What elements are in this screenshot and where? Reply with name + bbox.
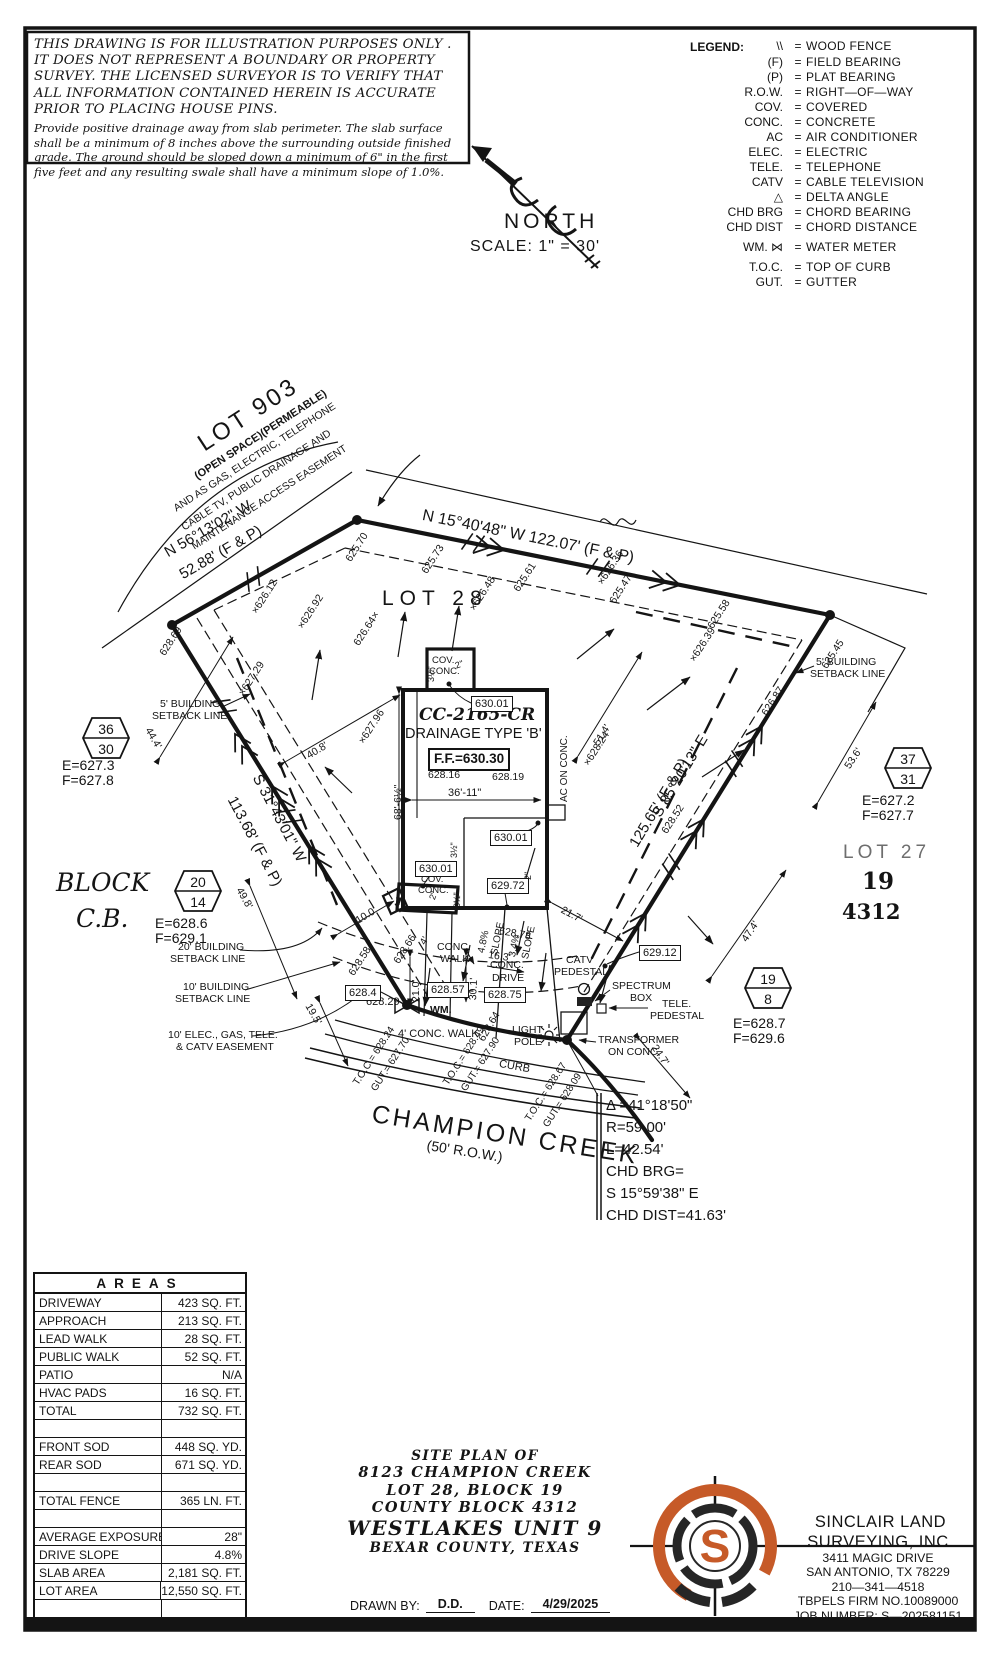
areas-row-value: 52 SQ. FT. — [162, 1348, 245, 1365]
legend-symbol: ELEC. — [690, 146, 790, 158]
legend-label: CABLE TELEVISION — [806, 176, 990, 188]
lot-marker-hexagon: 19 8 — [744, 966, 792, 1010]
plan-label: CATV — [566, 955, 593, 966]
areas-row-label — [35, 1600, 162, 1617]
plan-label: R=59.00' — [606, 1120, 666, 1135]
legend-symbol: CHD DIST — [690, 221, 790, 233]
hex-bottom-number: 14 — [190, 894, 206, 910]
surveyor-name-line2: SURVEYING, INC. — [798, 1533, 963, 1553]
hex-top-number: 37 — [900, 751, 916, 767]
areas-row-label — [35, 1474, 162, 1491]
areas-row-label: SLAB AREA — [35, 1564, 162, 1581]
areas-row-value: 12,550 SQ. FT. — [161, 1582, 245, 1599]
legend-equals: = — [790, 276, 806, 288]
title-block-line: 8123 CHAMPION CREEK — [325, 1464, 625, 1481]
areas-table-row: PUBLIC WALK 52 SQ. FT. — [35, 1348, 245, 1366]
north-label: NORTH — [504, 210, 598, 234]
legend-label: WOOD FENCE — [806, 40, 990, 52]
title-block-line: WESTLAKES UNIT 9 — [325, 1516, 625, 1540]
drawn-by-label: DRAWN BY: — [350, 1599, 420, 1613]
tele-pedestal-icon — [597, 1004, 606, 1013]
areas-row-value — [162, 1600, 245, 1617]
plan-label: 19 — [862, 870, 894, 893]
plan-label: TELE. — [662, 999, 691, 1010]
elevation-box: 630.01 — [471, 696, 513, 712]
plan-label: SETBACK LINE — [175, 994, 250, 1005]
areas-table-title: AREAS — [35, 1274, 245, 1294]
hex-bottom-number: 30 — [98, 741, 114, 757]
legend-symbol: TELE. — [690, 161, 790, 173]
title-block: SITE PLAN OF 8123 CHAMPION CREEK LOT 28,… — [325, 1448, 625, 1557]
plan-label: PEDESTAL — [650, 1011, 704, 1022]
elevation-box: 630.01 — [490, 830, 532, 846]
legend-equals: = — [790, 86, 806, 98]
legend-row: COV. = COVERED — [690, 101, 990, 113]
plan-label: BOX — [630, 993, 652, 1004]
plan-label: PEDESTAL — [554, 967, 608, 978]
legend-symbol: (F) — [690, 56, 790, 68]
legend-row: (P) = PLAT BEARING — [690, 71, 990, 83]
legend-equals: = — [790, 241, 806, 253]
areas-row-label: APPROACH — [35, 1312, 162, 1329]
areas-row-label: REAR SOD — [35, 1456, 162, 1473]
legend-row: T.O.C. = TOP OF CURB — [690, 261, 990, 273]
legend-label: PLAT BEARING — [806, 71, 990, 83]
surveyor-phone: 210—341—4518 — [778, 1580, 978, 1594]
plan-label: CHD BRG= — [606, 1164, 684, 1179]
areas-row-label — [35, 1420, 162, 1437]
areas-table-row — [35, 1474, 245, 1492]
legend-equals: = — [790, 101, 806, 113]
plan-label: 3½" — [450, 842, 459, 858]
legend-row: AC = AIR CONDITIONER — [690, 131, 990, 143]
areas-row-value: 671 SQ. YD. — [162, 1456, 245, 1473]
plan-label: & CATV EASEMENT — [176, 1042, 274, 1053]
plan-label: AC ON CONC. — [560, 735, 570, 802]
disclaimer-body: Provide positive drainage away from slab… — [34, 121, 464, 179]
areas-row-label: AVERAGE EXPOSURE — [35, 1528, 162, 1545]
legend-equals: = — [790, 40, 806, 52]
plan-label: BLOCK — [56, 870, 149, 895]
legend-label: AIR CONDITIONER — [806, 131, 990, 143]
areas-row-label — [35, 1510, 162, 1527]
plan-label: SETBACK LINE — [170, 954, 245, 965]
areas-table-row: LOT AREA 12,550 SQ. FT. — [35, 1582, 245, 1600]
areas-table-row — [35, 1600, 245, 1618]
legend-symbol: AC — [690, 131, 790, 143]
plan-label: 5' BUILDING — [160, 699, 220, 710]
surveyor-firm: TBPELS FIRM NO.10089000 — [778, 1594, 978, 1608]
areas-row-value: 28" — [162, 1528, 245, 1545]
areas-table-row: LEAD WALK 28 SQ. FT. — [35, 1330, 245, 1348]
surveyor-name: SINCLAIR LAND SURVEYING, INC. — [798, 1513, 963, 1553]
plan-label: F=629.1 — [155, 931, 207, 945]
legend-symbol: CHD BRG — [690, 206, 790, 218]
areas-table-row: TOTAL FENCE 365 LN. FT. — [35, 1492, 245, 1510]
areas-table-row: DRIVEWAY 423 SQ. FT. — [35, 1294, 245, 1312]
legend-symbol: CONC. — [690, 116, 790, 128]
legend-symbol: GUT. — [690, 276, 790, 288]
areas-row-label: HVAC PADS — [35, 1384, 162, 1401]
areas-table-row: PATIO N/A — [35, 1366, 245, 1384]
plan-label: E=627.2 — [862, 793, 915, 807]
legend-equals: = — [790, 261, 806, 273]
plan-label: Δ =41°18'50" — [606, 1098, 692, 1113]
surveyor-job-number: JOB NUMBER: S—202581151 — [778, 1609, 978, 1623]
legend-row: R.O.W. = RIGHT—OF—WAY — [690, 86, 990, 98]
legend-label: CHORD BEARING — [806, 206, 990, 218]
legend-symbol: COV. — [690, 101, 790, 113]
legend-row: TELE. = TELEPHONE — [690, 161, 990, 173]
plan-label: CHD DIST=41.63' — [606, 1208, 726, 1223]
legend-label: TELEPHONE — [806, 161, 990, 173]
plan-label: F=627.8 — [62, 773, 114, 787]
surveyor-street: 3411 MAGIC DRIVE — [778, 1551, 978, 1565]
legend-label: WATER METER — [806, 241, 990, 253]
elevation-box: 628.4 — [345, 985, 381, 1001]
areas-table-row: DRIVE SLOPE 4.8% — [35, 1546, 245, 1564]
plan-label: TRANSFORMER — [598, 1035, 679, 1046]
plan-label: 4312 — [842, 901, 900, 922]
elevation-box: 628.57 — [427, 982, 469, 998]
legend-equals: = — [790, 191, 806, 203]
areas-row-label: PATIO — [35, 1366, 162, 1383]
areas-row-value: 423 SQ. FT. — [162, 1294, 245, 1311]
lot-marker-hexagon: 36 30 — [82, 716, 130, 760]
title-block-line: LOT 28, BLOCK 19 — [325, 1482, 625, 1499]
elevation-box: 629.72 — [487, 878, 529, 894]
spectrum-box-icon — [577, 997, 592, 1006]
areas-row-value: 365 LN. FT. — [162, 1492, 245, 1509]
legend-row: CATV = CABLE TELEVISION — [690, 176, 990, 188]
title-block-line: BEXAR COUNTY, TEXAS — [325, 1540, 625, 1556]
areas-table-row: HVAC PADS 16 SQ. FT. — [35, 1384, 245, 1402]
plan-label: F=629.6 — [733, 1031, 785, 1045]
site-plan-sheet: S THIS DRAWING IS FOR ILLUSTRATION PURPO… — [0, 0, 1005, 1657]
legend-symbol: WM. ⋈ — [690, 241, 790, 253]
scale-label: SCALE: 1" = 30' — [470, 238, 600, 256]
plan-label: 3½" — [453, 892, 462, 908]
hex-top-number: 19 — [760, 971, 776, 987]
date-value: 4/29/2025 — [531, 1597, 611, 1613]
elevation-box: 628.75 — [484, 987, 526, 1003]
areas-row-value — [162, 1420, 245, 1437]
legend-label: CONCRETE — [806, 116, 990, 128]
legend-symbol: △ — [690, 191, 790, 203]
areas-table-row: SLAB AREA 2,181 SQ. FT. — [35, 1564, 245, 1582]
areas-row-value: 732 SQ. FT. — [162, 1402, 245, 1419]
areas-row-value: 448 SQ. YD. — [162, 1438, 245, 1455]
plan-label: S 15°59'38" E — [606, 1186, 699, 1201]
areas-row-value: N/A — [162, 1366, 245, 1383]
legend-symbol: CATV — [690, 176, 790, 188]
areas-table-row: TOTAL 732 SQ. FT. — [35, 1402, 245, 1420]
areas-row-value: 213 SQ. FT. — [162, 1312, 245, 1329]
legend-label: RIGHT—OF—WAY — [806, 86, 990, 98]
areas-row-value: 28 SQ. FT. — [162, 1330, 245, 1347]
plan-label: 21.0' — [411, 980, 422, 1002]
legend-row: ELEC. = ELECTRIC — [690, 146, 990, 158]
drawn-by-value: D.D. — [426, 1597, 475, 1613]
disclaimer-heading: THIS DRAWING IS FOR ILLUSTRATION PURPOSE… — [34, 37, 464, 118]
logo-letter: S — [700, 1520, 731, 1572]
plan-label: LIGHT — [512, 1025, 543, 1036]
areas-row-label: TOTAL FENCE — [35, 1492, 162, 1509]
elevation-box: 630.01 — [415, 861, 457, 877]
plan-label: C.B. — [76, 906, 129, 931]
areas-row-label: DRIVEWAY — [35, 1294, 162, 1311]
legend-row: CHD DIST = CHORD DISTANCE — [690, 221, 990, 233]
areas-table-row: APPROACH 213 SQ. FT. — [35, 1312, 245, 1330]
areas-table-row: FRONT SOD 448 SQ. YD. — [35, 1438, 245, 1456]
lot-marker-hexagon: 20 14 — [174, 869, 222, 913]
surveyor-address: 3411 MAGIC DRIVE SAN ANTONIO, TX 78229 2… — [778, 1551, 978, 1623]
legend-equals: = — [790, 146, 806, 158]
plan-label: 3½" — [427, 666, 436, 682]
legend-equals: = — [790, 71, 806, 83]
plan-label: SETBACK LINE — [152, 711, 227, 722]
areas-row-label: LOT AREA — [35, 1582, 161, 1599]
plan-label: LOT 27 — [843, 843, 930, 862]
plan-label: 4' CONC. WALK — [398, 1029, 479, 1040]
plan-label: CONC. — [437, 942, 471, 953]
date-label: DATE: — [489, 1599, 525, 1613]
areas-table-row: AVERAGE EXPOSURE 28" — [35, 1528, 245, 1546]
legend-symbol: (P) — [690, 71, 790, 83]
areas-table: AREAS DRIVEWAY 423 SQ. FT. APPROACH 213 … — [33, 1272, 247, 1620]
areas-table-row — [35, 1420, 245, 1438]
plan-label: E=627.3 — [62, 758, 115, 772]
plan-label: WM. — [430, 1005, 452, 1016]
legend-equals: = — [790, 206, 806, 218]
plan-label: F=627.7 — [862, 808, 914, 822]
plan-label: DRAINAGE TYPE 'B' — [405, 727, 542, 742]
areas-row-value — [162, 1510, 245, 1527]
legend-label: GUTTER — [806, 276, 990, 288]
legend-row: CHD BRG = CHORD BEARING — [690, 206, 990, 218]
legend-row: (F) = FIELD BEARING — [690, 56, 990, 68]
plan-label: POLE — [514, 1037, 542, 1048]
plan-label: L=42.54' — [606, 1142, 664, 1157]
surveyor-name-line1: SINCLAIR LAND — [798, 1513, 963, 1533]
legend-label: DELTA ANGLE — [806, 191, 990, 203]
lot-marker-hexagon: 37 31 — [884, 746, 932, 790]
legend-label: CHORD DISTANCE — [806, 221, 990, 233]
areas-row-value — [162, 1474, 245, 1491]
plan-label: 628.19 — [492, 772, 524, 783]
legend-equals: = — [790, 161, 806, 173]
areas-row-label: LEAD WALK — [35, 1330, 162, 1347]
disclaimer: THIS DRAWING IS FOR ILLUSTRATION PURPOSE… — [34, 37, 464, 179]
plan-label: SETBACK LINE — [810, 669, 885, 680]
legend-row: GUT. = GUTTER — [690, 276, 990, 288]
title-block-line: SITE PLAN OF — [325, 1448, 625, 1464]
drawn-by-row: DRAWN BY: D.D. DATE: 4/29/2025 — [350, 1597, 624, 1613]
legend-equals: = — [790, 221, 806, 233]
legend-row: \\ = WOOD FENCE — [690, 40, 990, 52]
legend-symbol: R.O.W. — [690, 86, 790, 98]
plan-label: 628.16 — [428, 770, 460, 781]
areas-row-label: FRONT SOD — [35, 1438, 162, 1455]
areas-row-value: 2,181 SQ. FT. — [162, 1564, 245, 1581]
areas-row-value: 4.8% — [162, 1546, 245, 1563]
areas-table-row — [35, 1510, 245, 1528]
plan-label: 10' ELEC., GAS, TELE. — [168, 1030, 278, 1041]
elevation-box: 629.12 — [639, 945, 681, 961]
hex-bottom-number: 8 — [764, 991, 772, 1007]
hex-top-number: 36 — [98, 721, 114, 737]
plan-label: 10' BUILDING — [183, 982, 249, 993]
plan-label: E=628.7 — [733, 1016, 786, 1030]
areas-row-label: DRIVE SLOPE — [35, 1546, 162, 1563]
plan-label: COV. — [432, 656, 454, 666]
plan-label: 68'-6½" — [393, 784, 404, 820]
plan-label: SPECTRUM — [612, 981, 671, 992]
legend-label: FIELD BEARING — [806, 56, 990, 68]
hex-top-number: 20 — [190, 874, 206, 890]
legend-row: CONC. = CONCRETE — [690, 116, 990, 128]
plan-label: DRIVE — [492, 973, 524, 984]
areas-row-label: PUBLIC WALK — [35, 1348, 162, 1365]
areas-table-row: REAR SOD 671 SQ. YD. — [35, 1456, 245, 1474]
plan-label: WALK — [440, 954, 469, 965]
catv-pedestal-icon — [579, 984, 590, 995]
legend-symbol: \\ — [690, 40, 790, 52]
elevation-box: F.F.=630.30 — [428, 748, 510, 771]
plan-label: 30.1' — [468, 978, 480, 1001]
legend-label: ELECTRIC — [806, 146, 990, 158]
legend-label: COVERED — [806, 101, 990, 113]
title-block-line: COUNTY BLOCK 4312 — [325, 1499, 625, 1516]
legend-equals: = — [790, 176, 806, 188]
legend-equals: = — [790, 116, 806, 128]
legend-symbol: T.O.C. — [690, 261, 790, 273]
legend-label: TOP OF CURB — [806, 261, 990, 273]
legend-equals: = — [790, 131, 806, 143]
areas-row-value: 16 SQ. FT. — [162, 1384, 245, 1401]
surveyor-city: SAN ANTONIO, TX 78229 — [778, 1565, 978, 1579]
legend-equals: = — [790, 56, 806, 68]
plan-label: 36'-11" — [448, 788, 481, 799]
hex-bottom-number: 31 — [900, 771, 916, 787]
legend-row: △ = DELTA ANGLE — [690, 191, 990, 203]
legend-row: WM. ⋈ = WATER METER — [690, 241, 990, 253]
plan-label: E=628.6 — [155, 916, 208, 930]
areas-row-label: TOTAL — [35, 1402, 162, 1419]
